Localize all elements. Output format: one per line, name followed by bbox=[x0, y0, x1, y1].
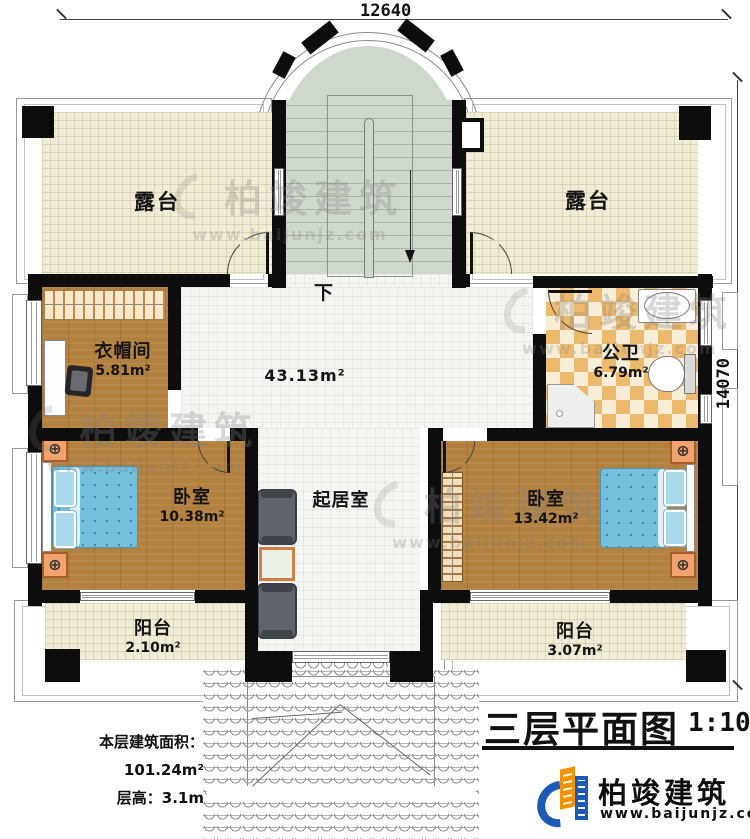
drawing-title: 三层平面图 bbox=[484, 699, 679, 753]
shower-drain bbox=[556, 410, 563, 417]
pillow bbox=[54, 511, 76, 548]
room-label-balcony-left: 阳台 2.10m² bbox=[93, 618, 213, 656]
floor-area-line: 本层建筑面积：101.24m² bbox=[28, 729, 204, 785]
pillow bbox=[664, 510, 686, 546]
dimension-tick bbox=[721, 9, 732, 20]
logo-building-blue bbox=[575, 776, 588, 820]
room-label-bedroom-right: 卧室 13.42m² bbox=[486, 489, 606, 527]
balcony-post bbox=[45, 649, 80, 682]
sofa bbox=[257, 583, 297, 639]
room-label-balcony-right: 阳台 3.07m² bbox=[515, 621, 635, 659]
drawing-scale: 1:100 bbox=[688, 708, 750, 738]
wall-segment bbox=[533, 334, 546, 430]
porch-post bbox=[245, 651, 292, 682]
coffee-table bbox=[259, 547, 295, 581]
window bbox=[700, 300, 712, 346]
room-label-bathroom: 公卫 6.79m² bbox=[561, 343, 681, 381]
floor-plan: 12640 14070 bbox=[0, 0, 750, 839]
toilet-tank bbox=[684, 354, 696, 394]
nightstand: ⊕ bbox=[670, 552, 696, 578]
logo-building-orange bbox=[560, 766, 575, 809]
hall-floor bbox=[181, 287, 533, 428]
stair-direction-line bbox=[410, 170, 411, 250]
room-label-terrace-left: 露台 bbox=[107, 190, 207, 215]
bed-headboard bbox=[686, 464, 695, 552]
bed-headboard bbox=[42, 462, 52, 552]
wall-segment bbox=[428, 590, 470, 603]
balcony-post bbox=[686, 650, 726, 682]
window bbox=[700, 394, 712, 424]
wall-segment bbox=[268, 274, 286, 287]
wall-segment bbox=[610, 590, 712, 603]
wall-niche bbox=[458, 118, 484, 152]
stair-handrail bbox=[364, 118, 374, 278]
wall-segment bbox=[533, 276, 713, 288]
stair-direction-arrow bbox=[405, 250, 415, 263]
room-label-bedroom-left: 卧室 10.38m² bbox=[132, 487, 252, 525]
wall-segment bbox=[452, 274, 470, 287]
sink-bowl bbox=[644, 292, 690, 319]
brand-url: www.baijunjz.com bbox=[600, 806, 750, 822]
window bbox=[274, 168, 284, 216]
right-dimension-label: 14070 bbox=[714, 358, 734, 409]
roof-gap bbox=[207, 786, 475, 796]
brand-logo-icon bbox=[542, 768, 594, 830]
closet-hanger-rod bbox=[44, 290, 166, 320]
window bbox=[470, 592, 610, 601]
wall-segment bbox=[30, 274, 230, 287]
wall-segment bbox=[28, 428, 198, 441]
pillow bbox=[54, 470, 76, 507]
window bbox=[292, 651, 390, 663]
window bbox=[26, 300, 42, 386]
pillow bbox=[664, 470, 686, 506]
bed bbox=[600, 468, 666, 548]
floor-height-line: 层高：3.1m bbox=[28, 785, 204, 813]
area-label-hall: 43.13m² bbox=[245, 366, 365, 385]
wall-segment bbox=[428, 428, 441, 603]
window-bay-outline bbox=[722, 292, 738, 350]
porch-roof-inner-outline bbox=[247, 676, 435, 788]
window bbox=[80, 592, 195, 601]
wardrobe bbox=[442, 472, 463, 582]
room-label-cloakroom: 衣帽间 5.81m² bbox=[63, 341, 183, 379]
room-label-living-room: 起居室 bbox=[281, 490, 401, 512]
nightstand: ⊕ bbox=[42, 552, 68, 578]
wall-segment bbox=[28, 590, 80, 603]
porch-post bbox=[390, 651, 433, 682]
corner-post bbox=[22, 106, 54, 138]
corner-post bbox=[679, 106, 711, 140]
top-dimension-label: 12640 bbox=[360, 1, 411, 21]
wall-segment bbox=[487, 428, 712, 441]
title-underline bbox=[482, 746, 734, 750]
floor-info: 本层建筑面积：101.24m² 层高：3.1m bbox=[28, 729, 204, 812]
room-label-terrace-right: 露台 bbox=[538, 189, 638, 214]
window bbox=[452, 168, 462, 216]
window bbox=[26, 452, 42, 564]
right-dimension-line bbox=[737, 80, 738, 688]
stairs-down-label: 下 bbox=[314, 278, 333, 305]
dimension-tick bbox=[56, 9, 67, 20]
nightstand: ⊕ bbox=[670, 438, 696, 464]
